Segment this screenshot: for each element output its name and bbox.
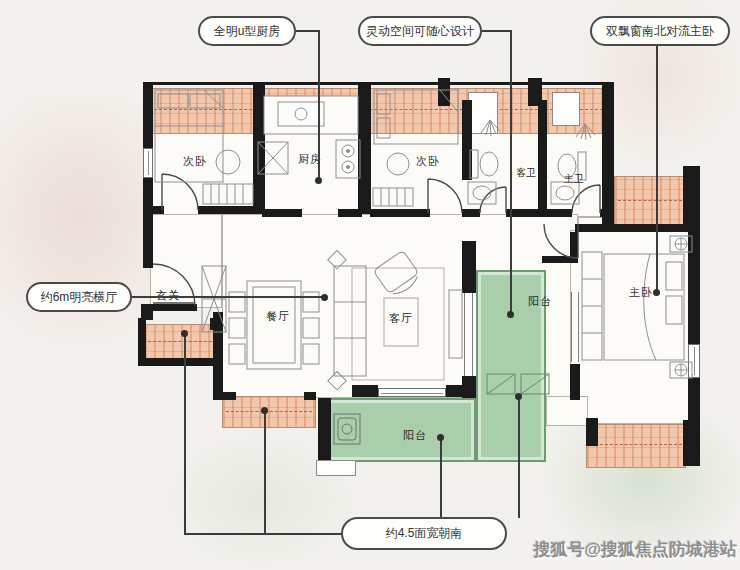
wall: [304, 392, 316, 400]
wall: [462, 209, 480, 217]
sliding-window: [464, 293, 473, 376]
leader-kitchen: [296, 30, 320, 32]
window: [378, 388, 446, 397]
wall: [262, 209, 302, 217]
wall: [147, 304, 197, 311]
room-label-bedroom-left: 次卧: [170, 155, 220, 168]
floor-gap: [546, 396, 588, 426]
leader-south: [184, 533, 342, 535]
wall: [253, 82, 265, 214]
wall: [150, 206, 164, 214]
leader-master: [656, 46, 658, 292]
room-label-balcony-right: 阳台: [516, 295, 564, 308]
wall: [683, 420, 700, 466]
wall: [318, 398, 331, 460]
floor-master-bedroom: [570, 230, 690, 424]
leader-south: [440, 437, 442, 518]
room-label-bedroom-mid: 次卧: [403, 155, 453, 168]
wall: [358, 82, 371, 214]
leader-dot: [653, 289, 660, 296]
wall: [150, 82, 614, 85]
wall: [538, 100, 547, 212]
leader-dot: [321, 294, 328, 301]
wall: [688, 230, 700, 344]
wall: [462, 241, 476, 293]
window: [143, 148, 153, 178]
wall: [198, 206, 255, 214]
wall: [222, 392, 236, 400]
wall: [683, 166, 700, 232]
leader-dot: [315, 177, 322, 184]
duct-shaft: [468, 92, 498, 134]
wall: [338, 209, 362, 217]
leader-dot: [507, 311, 514, 318]
wall: [570, 232, 578, 260]
callout-hall: 约6m明亮横厅: [26, 282, 132, 312]
callout-flexible-space: 灵动空间可随心设计: [358, 16, 482, 46]
wall: [575, 224, 690, 232]
leader-dot: [515, 393, 522, 400]
bay-window-master-north: [614, 176, 686, 230]
floorplan-canvas: 次卧 厨房 次卧 客卫 主卫 玄关 餐厅 客厅 阳台 阳台 主卧 全明u型厨房 …: [0, 0, 740, 570]
window: [688, 344, 700, 378]
room-label-kitchen: 厨房: [285, 153, 335, 166]
wall: [143, 178, 153, 268]
sliding-window: [571, 292, 579, 362]
wall: [143, 82, 153, 148]
wall: [138, 358, 220, 366]
wall: [352, 385, 378, 397]
leader-kitchen: [318, 30, 320, 182]
leader-south: [518, 396, 520, 518]
bay-window-dining-south: [222, 396, 316, 428]
watermark-text: 搜狐号@搜狐焦点防城港站: [533, 538, 737, 561]
room-label-dining: 餐厅: [254, 310, 302, 323]
callout-master-bedroom: 双飘窗南北对流主卧: [590, 16, 730, 46]
callout-kitchen: 全明u型厨房: [198, 16, 296, 46]
leader-flexible: [482, 30, 512, 32]
wall: [506, 209, 572, 217]
leader-dot: [437, 434, 444, 441]
leader-hall: [132, 296, 324, 298]
leader-south: [264, 410, 266, 535]
leader-dot: [181, 330, 188, 337]
balcony-railing-box: [316, 460, 356, 476]
wall: [570, 364, 580, 400]
room-label-balcony-bottom: 阳台: [391, 429, 439, 442]
wall: [213, 312, 223, 400]
leader-flexible: [510, 30, 512, 314]
duct-shaft: [552, 92, 580, 126]
bay-window-master-south: [586, 424, 686, 468]
leader-south: [184, 333, 186, 535]
wall: [370, 209, 430, 217]
wall: [438, 78, 450, 106]
room-label-living: 客厅: [377, 312, 425, 325]
bay-window-southwest: [144, 324, 216, 362]
room-label-master-bath: 主卫: [554, 172, 594, 185]
wall: [688, 378, 700, 422]
wall: [586, 418, 598, 446]
callout-south-facing: 约4.5面宽朝南: [341, 517, 507, 550]
wall: [462, 100, 472, 180]
room-label-guest-bath: 客卫: [506, 166, 546, 179]
wall: [600, 209, 614, 217]
leader-dot: [261, 407, 268, 414]
wall: [462, 376, 476, 398]
